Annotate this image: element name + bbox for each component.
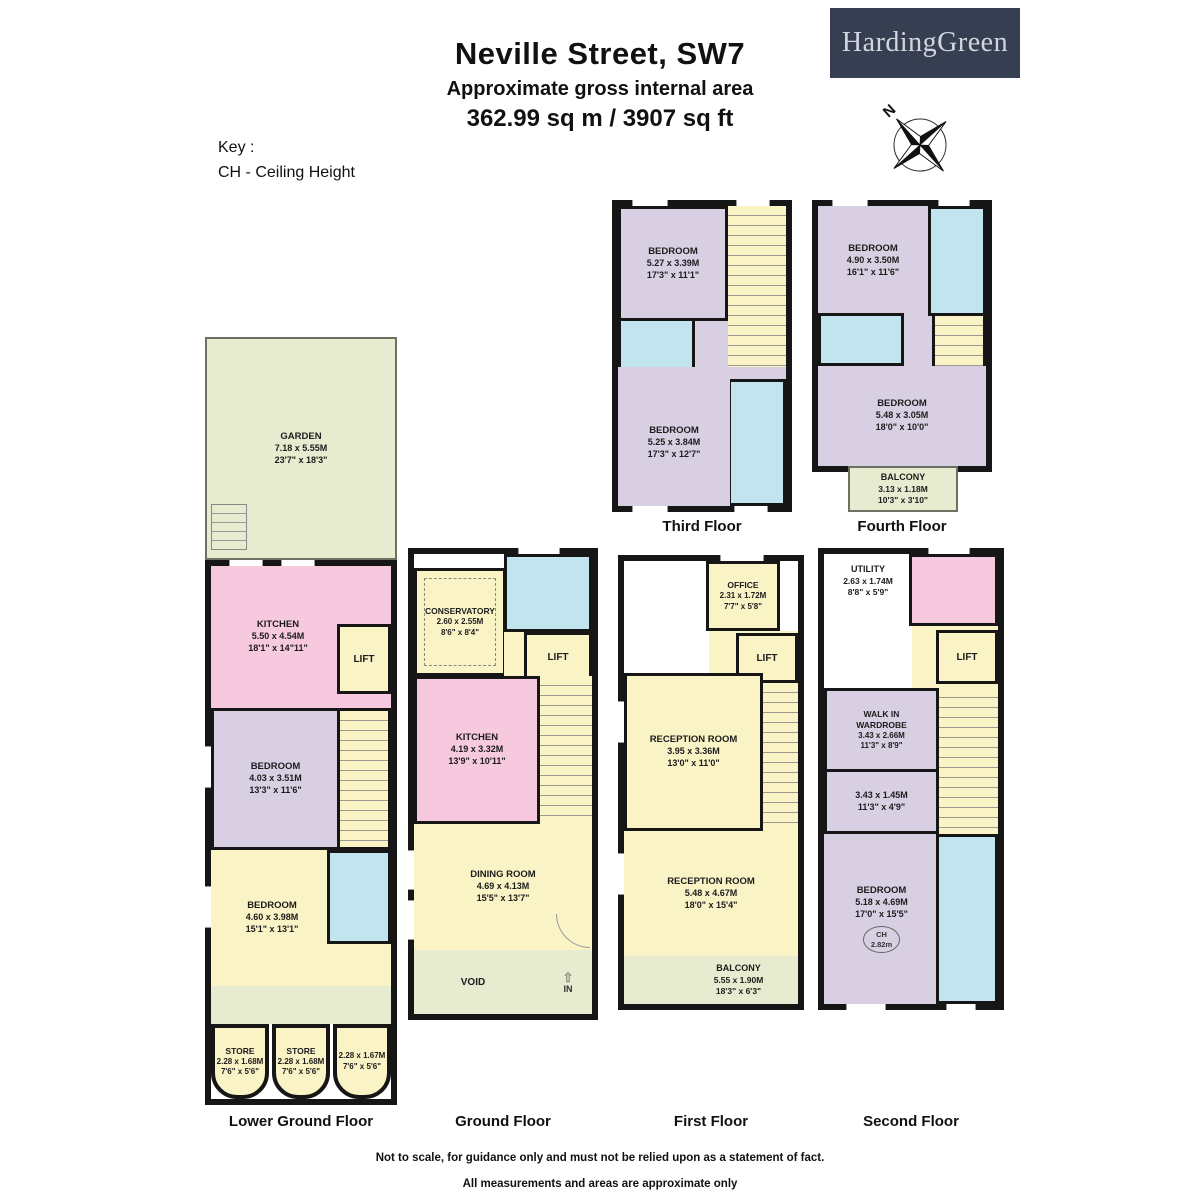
second-floor-inner-room: 3.43 x 1.45M 11'3" x 4'9" [824, 769, 939, 834]
window [229, 560, 263, 566]
room-dims-ft: 11'3" x 4'9" [858, 802, 905, 814]
key-ch-item: CH - Ceiling Height [218, 161, 355, 186]
room-name: STORE [286, 1046, 315, 1057]
first-floor-stairs [763, 683, 798, 831]
second-floor-lift: LIFT [936, 630, 998, 684]
first-floor-outside-area [624, 561, 709, 673]
room-dims-ft: 13'3" x 11'6" [249, 785, 301, 797]
room-name: BEDROOM [648, 246, 698, 258]
fourth-floor-bathroom-1 [928, 206, 986, 316]
window [518, 548, 560, 554]
room-name: KITCHEN [257, 619, 299, 631]
second-floor-stairs [939, 688, 998, 834]
room-dims-ft: 11'3" x 8'9" [860, 741, 902, 751]
window [832, 200, 868, 206]
lower-ground-store-1: STORE 2.28 x 1.68M 7'6" x 5'6" [211, 1024, 269, 1099]
room-dims-m: 5.48 x 3.05M [876, 410, 929, 422]
room-name: DINING ROOM [470, 869, 535, 881]
room-dims-ft: 7'6" x 5'6" [343, 1062, 381, 1072]
room-dims-m: 5.18 x 4.69M [855, 897, 908, 909]
room-dims-m: 2.31 x 1.72M [720, 591, 767, 601]
window [720, 555, 764, 561]
key-block: Key : CH - Ceiling Height [218, 136, 355, 186]
ground-floor-kitchen: KITCHEN 4.19 x 3.32M 13'9" x 10'11" [414, 676, 540, 824]
room-dims-ft: 8'8" x 5'9" [848, 587, 888, 598]
second-floor-bathroom [936, 834, 998, 1004]
first-floor-reception-2: RECEPTION ROOM 5.48 x 4.67M 18'0" x 15'4… [624, 831, 798, 956]
first-floor-label: First Floor [618, 1113, 804, 1130]
room-dims-ft: 18'3" x 6'3" [716, 986, 761, 997]
window [618, 853, 624, 895]
room-dims-ft: 16'1" x 11'6" [847, 267, 899, 279]
second-floor-utility-room [909, 554, 998, 626]
compass-north-label: N [880, 101, 899, 121]
room-dims-m: 4.19 x 3.32M [451, 744, 504, 756]
window [281, 560, 315, 566]
room-name: BALCONY [716, 963, 761, 975]
floorplan-page: Neville Street, SW7 Approximate gross in… [0, 0, 1200, 1200]
third-floor-bedroom-2: BEDROOM 5.25 x 3.84M 17'3" x 12'7" [618, 379, 730, 506]
garden: GARDEN 7.18 x 5.55M 23'7" x 18'3" [205, 337, 397, 560]
compass-svg: N [868, 90, 968, 190]
room-name: OFFICE [727, 580, 758, 591]
room-name: BEDROOM [877, 398, 927, 410]
room-dims-m: 3.43 x 1.45M [855, 790, 908, 802]
room-dims-ft: 13'0" x 11'0" [667, 758, 719, 770]
window [632, 200, 668, 206]
fourth-floor-stairs [932, 313, 986, 369]
room-dims-ft: 15'1" x 13'1" [246, 924, 299, 936]
room-dims-ft: 17'3" x 11'1" [647, 270, 699, 282]
lower-ground-lightwell [211, 986, 391, 1024]
room-name: GARDEN [280, 431, 321, 443]
room-dims-m: 4.90 x 3.50M [847, 255, 900, 267]
lower-ground-store-3: 2.28 x 1.67M 7'6" x 5'6" [333, 1024, 391, 1099]
room-name: WALK IN WARDROBE [842, 709, 922, 731]
window [632, 506, 668, 512]
garden-steps [211, 504, 247, 550]
room-name: BALCONY [881, 472, 926, 484]
third-floor-label: Third Floor [612, 518, 792, 535]
room-dims-m: 5.55 x 1.90M [714, 975, 764, 986]
room-name: RECEPTION ROOM [667, 876, 755, 888]
fourth-floor-balcony: BALCONY 3.13 x 1.18M 10'3" x 3'10" [848, 466, 958, 512]
window [736, 200, 770, 206]
room-name: RECEPTION ROOM [650, 734, 738, 746]
ch-value: 2.82m [871, 940, 892, 949]
window [846, 1004, 886, 1010]
fourth-floor-plan: BEDROOM 4.90 x 3.50M 16'1" x 11'6" BEDRO… [812, 200, 992, 472]
window [408, 900, 414, 940]
room-dims-m: 4.60 x 3.98M [246, 912, 299, 924]
third-floor-stairs [726, 206, 786, 369]
room-dims-m: 3.43 x 2.66M [858, 731, 905, 741]
window [408, 850, 414, 890]
room-dims-ft: 18'1" x 14"11" [248, 643, 308, 655]
second-floor-plan: UTILITY 2.63 x 1.74M 8'8" x 5'9" LIFT WA… [818, 548, 1004, 1010]
room-dims-m: 2.28 x 1.68M [217, 1057, 264, 1067]
room-name: BEDROOM [857, 885, 907, 897]
void-label: VOID [461, 976, 485, 989]
room-dims-ft: 23'7" x 18'3" [275, 455, 328, 467]
room-dims-ft: 17'3" x 12'7" [648, 449, 701, 461]
ground-floor-entrance: ⇧ IN [544, 950, 592, 1014]
second-floor-utility-label-area: UTILITY 2.63 x 1.74M 8'8" x 5'9" [824, 554, 912, 688]
ground-floor-conservatory: CONSERVATORY 2.60 x 2.55M 8'6" x 8'4" [414, 568, 506, 676]
room-dims-ft: 8'6" x 8'4" [441, 628, 479, 638]
hardinggreen-logo: HardingGreen [830, 8, 1020, 78]
compass-rose-icon: N [868, 90, 968, 190]
lower-ground-bathroom [327, 850, 391, 944]
room-name: CONSERVATORY [425, 606, 495, 617]
room-dims-ft: 18'0" x 15'4" [685, 900, 738, 912]
ground-floor-label: Ground Floor [408, 1113, 598, 1130]
second-floor-walk-in-wardrobe: WALK IN WARDROBE 3.43 x 2.66M 11'3" x 8'… [824, 688, 939, 772]
room-dims-ft: 18'0" x 10'0" [876, 422, 929, 434]
page-subtitle: Approximate gross internal area [250, 78, 950, 101]
room-dims-ft: 7'6" x 5'6" [282, 1067, 320, 1077]
room-dims-m: 3.95 x 3.36M [667, 746, 720, 758]
entrance-in-label: IN [564, 984, 573, 994]
first-floor-reception-1: RECEPTION ROOM 3.95 x 3.36M 13'0" x 11'0… [624, 673, 763, 831]
room-name: BEDROOM [251, 761, 301, 773]
room-dims-ft: 15'5" x 13'7" [477, 893, 530, 905]
footer-disclaimer-1: Not to scale, for guidance only and must… [0, 1152, 1200, 1164]
room-dims-ft: 10'3" x 3'10" [878, 495, 928, 506]
fourth-floor-bedroom-2: BEDROOM 5.48 x 3.05M 18'0" x 10'0" [818, 366, 986, 466]
room-dims-m: 2.63 x 1.74M [843, 576, 893, 587]
ch-label: CH [871, 930, 892, 939]
window [938, 200, 970, 206]
room-dims-m: 2.60 x 2.55M [437, 617, 484, 627]
room-name: KITCHEN [456, 732, 498, 744]
window [946, 1004, 976, 1010]
lower-ground-store-2: STORE 2.28 x 1.68M 7'6" x 5'6" [272, 1024, 330, 1099]
first-floor-plan: OFFICE 2.31 x 1.72M 7'7" x 5'8" LIFT REC… [618, 555, 804, 1010]
room-dims-m: 3.13 x 1.18M [878, 484, 928, 495]
entrance-arrow-icon: ⇧ [563, 971, 574, 984]
ground-floor-bathroom [504, 554, 592, 632]
lower-ground-floor-plan: KITCHEN 5.50 x 4.54M 18'1" x 14"11" LIFT… [205, 560, 397, 1105]
room-dims-ft: 13'9" x 10'11" [448, 756, 505, 768]
lower-ground-floor-label: Lower Ground Floor [205, 1113, 397, 1130]
second-floor-label: Second Floor [818, 1113, 1004, 1130]
room-name: BEDROOM [247, 900, 297, 912]
window [205, 746, 211, 788]
gross-internal-area: 362.99 sq m / 3907 sq ft [250, 105, 950, 133]
second-floor-bedroom: BEDROOM 5.18 x 4.69M 17'0" x 15'5" CH 2.… [824, 834, 939, 1004]
third-floor-bathroom-2 [728, 379, 786, 506]
room-dims-m: 5.48 x 4.67M [685, 888, 738, 900]
room-dims-ft: 7'6" x 5'6" [221, 1067, 259, 1077]
first-floor-office: OFFICE 2.31 x 1.72M 7'7" x 5'8" [706, 561, 780, 631]
fourth-floor-label: Fourth Floor [812, 518, 992, 535]
room-dims-ft: 17'0" x 15'5" [855, 909, 908, 921]
ceiling-height-badge: CH 2.82m [863, 926, 900, 953]
ground-floor-plan: CONSERVATORY 2.60 x 2.55M 8'6" x 8'4" LI… [408, 548, 598, 1020]
ground-floor-stairs [540, 676, 592, 824]
room-name: UTILITY [851, 564, 885, 576]
window [618, 701, 624, 743]
fourth-floor-bathroom-2 [818, 313, 904, 366]
window [734, 506, 768, 512]
third-floor-plan: BEDROOM 5.27 x 3.39M 17'3" x 11'1" BEDRO… [612, 200, 792, 512]
first-floor-balcony: BALCONY 5.55 x 1.90M 18'3" x 6'3" [624, 956, 798, 1004]
ground-floor-lift: LIFT [524, 632, 592, 682]
lower-ground-lift: LIFT [337, 624, 391, 694]
lower-ground-stairs [337, 708, 391, 850]
room-dims-m: 5.25 x 3.84M [648, 437, 701, 449]
room-name: STORE [225, 1046, 254, 1057]
room-dims-m: 5.50 x 4.54M [252, 631, 305, 643]
window [928, 548, 970, 554]
third-floor-bedroom-1: BEDROOM 5.27 x 3.39M 17'3" x 11'1" [618, 206, 728, 321]
room-dims-m: 4.69 x 4.13M [477, 881, 530, 893]
room-dims-m: 4.03 x 3.51M [249, 773, 302, 785]
lower-ground-bedroom-1: BEDROOM 4.03 x 3.51M 13'3" x 11'6" [211, 708, 340, 850]
window [205, 886, 211, 928]
key-title: Key : [218, 136, 355, 161]
room-name: BEDROOM [649, 425, 699, 437]
fourth-floor-bedroom-1: BEDROOM 4.90 x 3.50M 16'1" x 11'6" [818, 206, 928, 316]
room-dims-ft: 7'7" x 5'8" [724, 602, 762, 612]
room-dims-m: 2.28 x 1.68M [278, 1057, 325, 1067]
room-dims-m: 2.28 x 1.67M [339, 1051, 386, 1061]
room-name: BEDROOM [848, 243, 898, 255]
room-dims-m: 5.27 x 3.39M [647, 258, 700, 270]
room-dims-m: 7.18 x 5.55M [275, 443, 328, 455]
footer-disclaimer-2: All measurements and areas are approxima… [0, 1178, 1200, 1190]
